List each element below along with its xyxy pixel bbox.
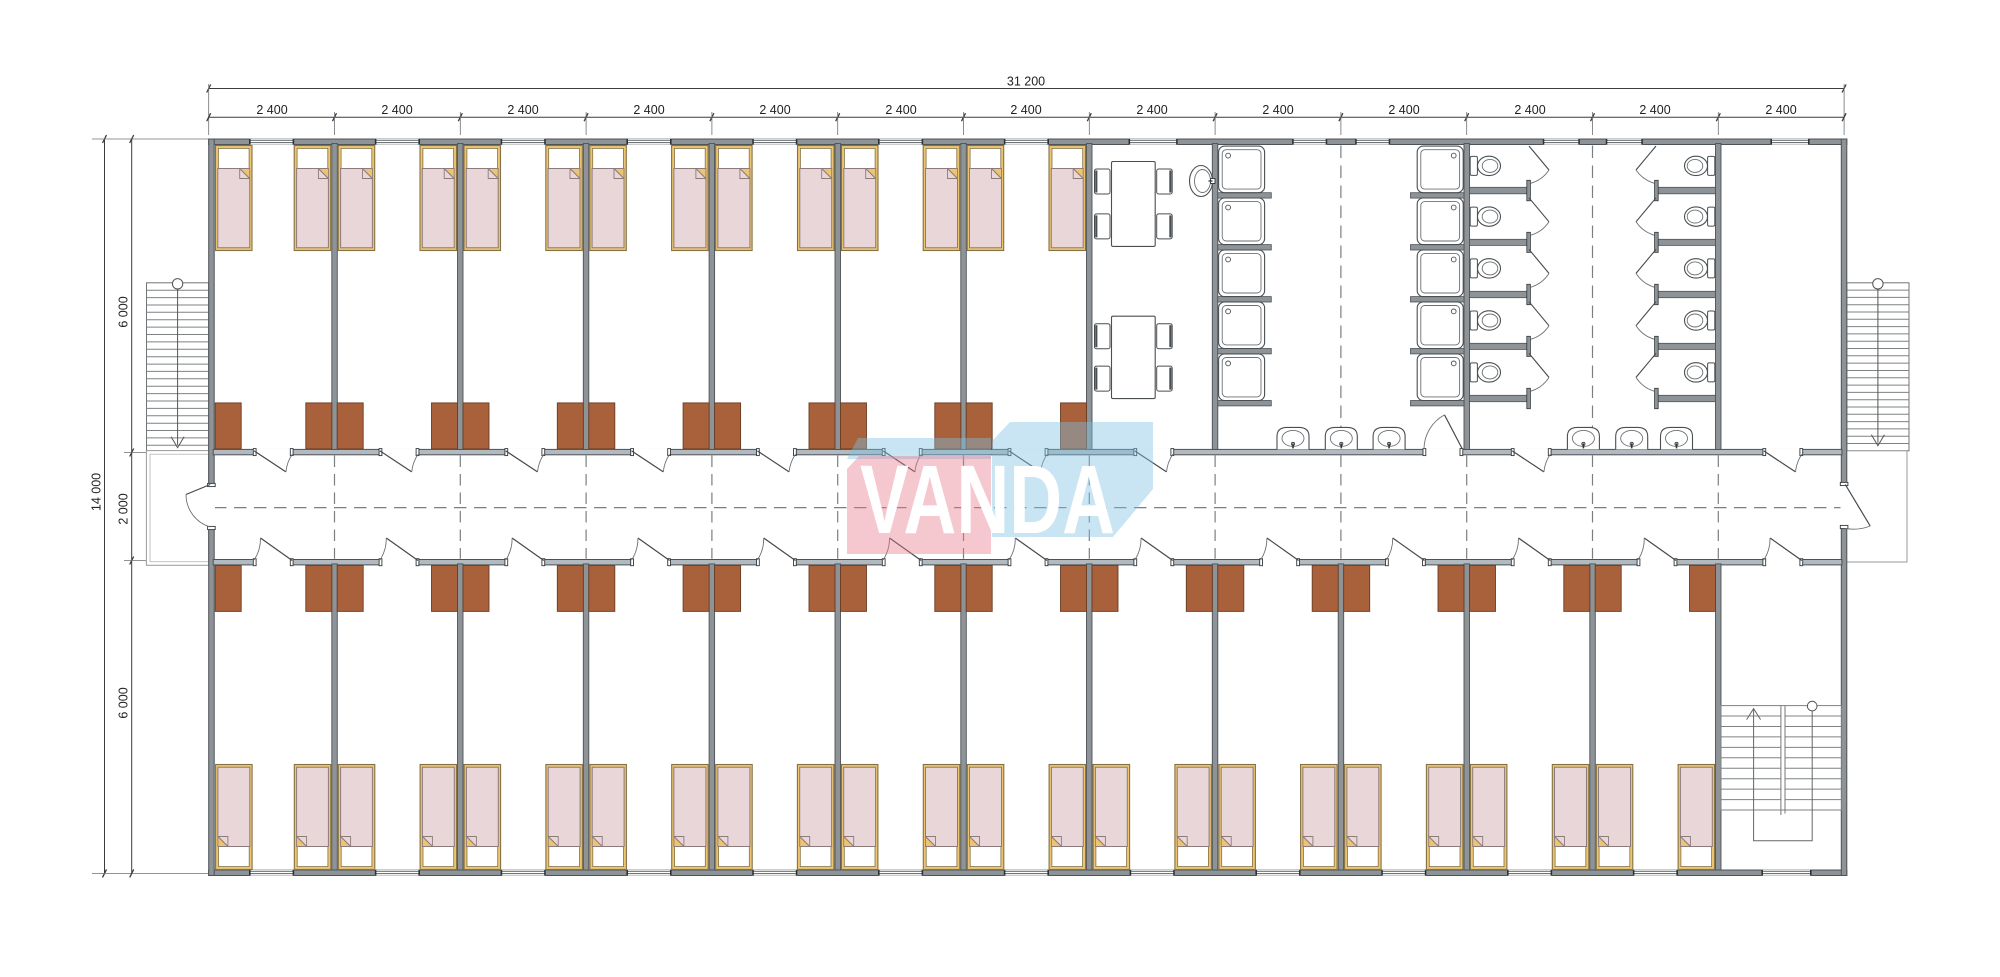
svg-text:2 400: 2 400 [1514,103,1545,117]
svg-text:6 000: 6 000 [117,687,131,718]
svg-text:2 400: 2 400 [1639,103,1670,117]
svg-text:2 400: 2 400 [1010,103,1041,117]
svg-text:2 400: 2 400 [885,103,916,117]
svg-text:2 400: 2 400 [507,103,538,117]
svg-text:2 400: 2 400 [633,103,664,117]
svg-text:2 400: 2 400 [381,103,412,117]
svg-text:2 400: 2 400 [1765,103,1796,117]
svg-text:31 200: 31 200 [1007,75,1045,89]
svg-text:2 400: 2 400 [1136,103,1167,117]
svg-text:6 000: 6 000 [117,296,131,327]
svg-text:2 400: 2 400 [759,103,790,117]
svg-text:2 400: 2 400 [1388,103,1419,117]
svg-text:VANDA: VANDA [860,445,1115,554]
svg-text:2 000: 2 000 [117,493,131,524]
svg-text:2 400: 2 400 [256,103,287,117]
svg-text:2 400: 2 400 [1262,103,1293,117]
svg-text:14 000: 14 000 [90,473,104,511]
